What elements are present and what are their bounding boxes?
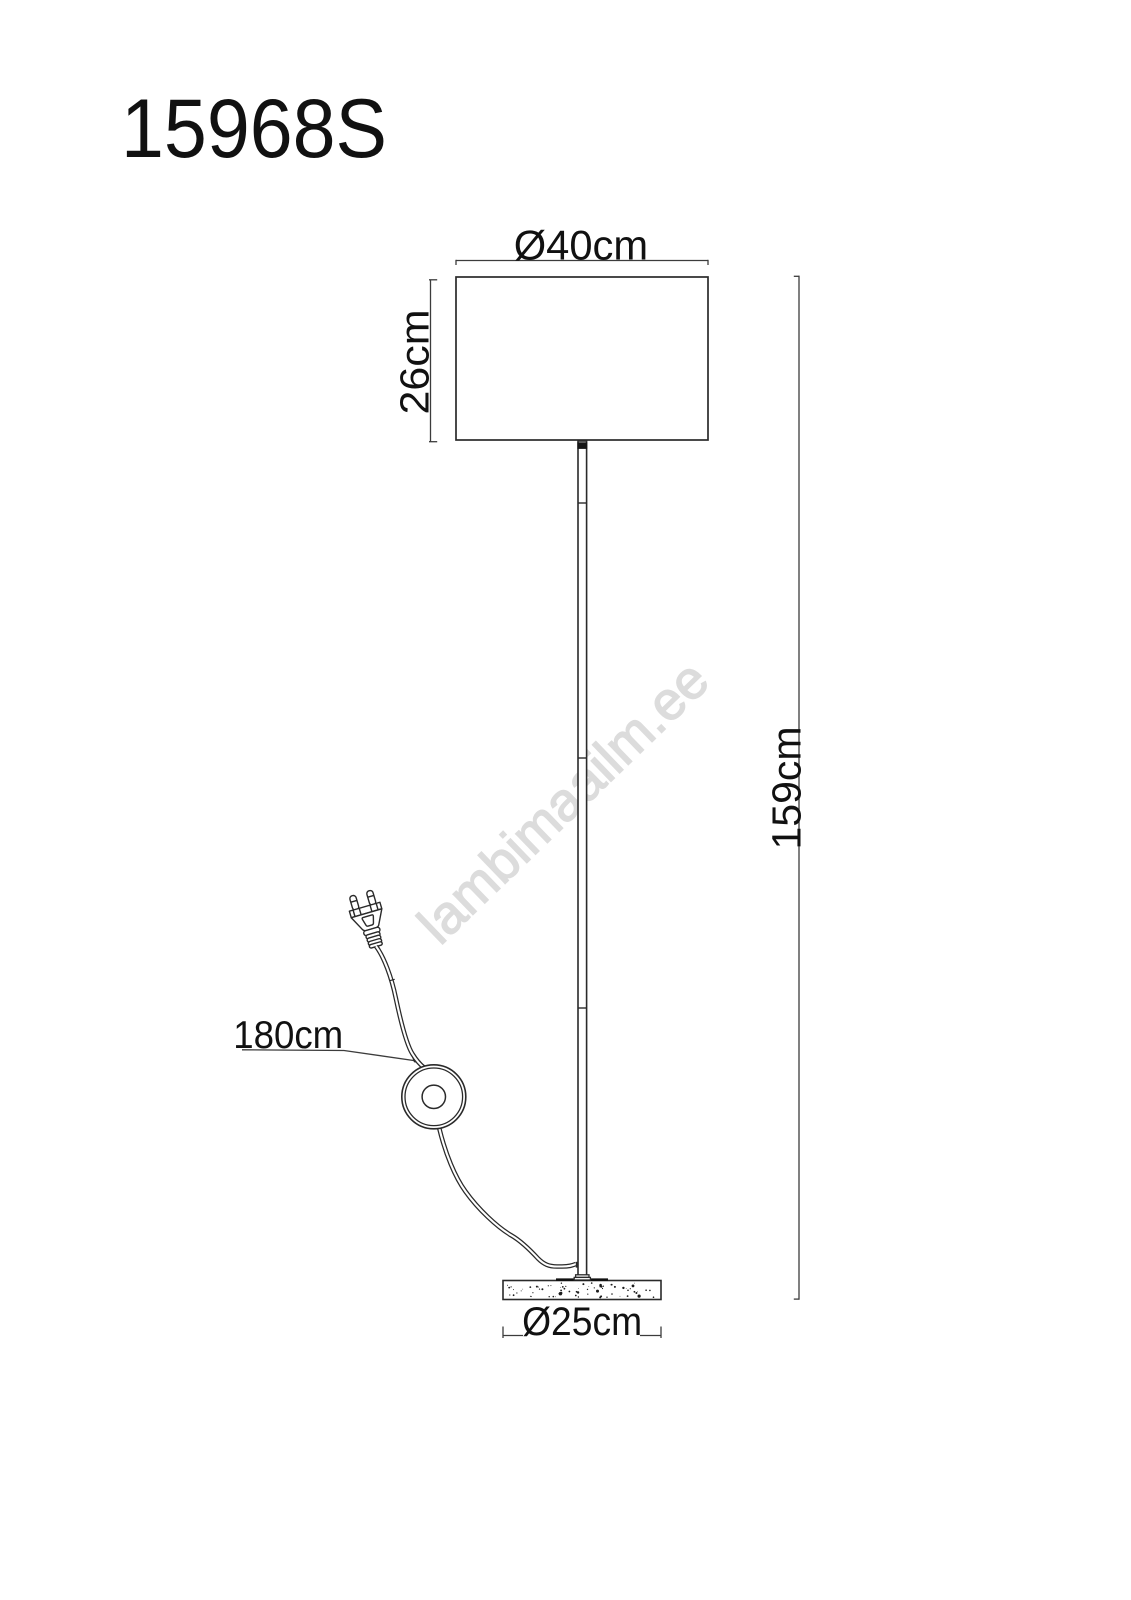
svg-text:159cm: 159cm [764, 726, 810, 849]
svg-text:26cm: 26cm [392, 310, 438, 415]
svg-text:15968S: 15968S [121, 82, 387, 175]
svg-text:Ø40cm: Ø40cm [514, 222, 648, 269]
svg-text:Ø25cm: Ø25cm [522, 1300, 642, 1344]
